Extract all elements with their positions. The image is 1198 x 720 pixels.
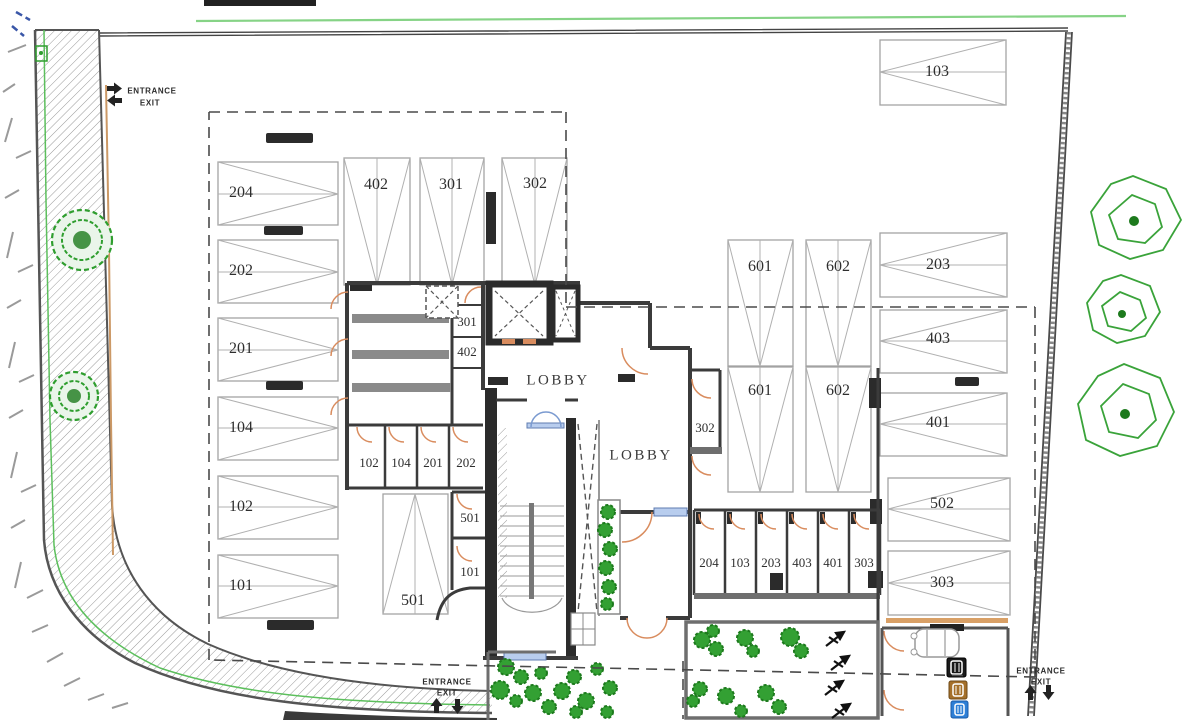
organic-waste-bin-icon [949,681,967,699]
core-planting-strip [598,500,620,614]
parking-stall [218,476,338,539]
door-arc [389,427,404,442]
parking-stall [218,162,338,225]
parking-stall [502,158,567,285]
parking-floor-plan: 204 202 201 104 102 101 402 301 302 103 … [0,0,1198,720]
plan-drawing [0,0,1198,720]
door-arc [421,427,436,442]
ramp [578,420,599,616]
elevator-door [502,339,515,344]
survey-corner-marks [12,12,30,36]
parking-stall [880,310,1007,373]
planter-bottom-center [488,652,617,720]
parking-stall [806,240,871,366]
parking-stall [218,397,338,460]
door-arc [692,456,711,475]
door-arc [457,494,472,509]
stair-core-wall [485,388,497,660]
entrance-arrows-top-left [107,83,122,107]
elevator-door [523,339,536,344]
stair-railing [498,428,507,598]
door-arc [854,514,869,529]
column [486,192,496,244]
parking-stall [218,240,338,303]
parking-stall [806,367,871,492]
green-boundary-line-top [196,16,1126,21]
parking-stall [880,233,1007,297]
entrance-double-door [627,618,667,638]
top-site-boundary [100,0,1126,36]
planter-bottom-right [686,622,878,718]
parking-stall [888,551,1010,615]
gate-bar [204,0,316,6]
arrow-right-icon [107,83,122,95]
parking-stall [218,555,338,618]
parking-stall [383,494,448,614]
general-waste-bin-icon [947,658,966,677]
parking-stall [218,318,338,381]
parking-stall [728,240,793,366]
stairs [498,428,564,612]
parking-stall [880,40,1006,105]
door-arc [884,631,904,651]
door-arc [453,427,468,442]
parking-stall [344,158,410,285]
curb-line [886,618,1008,623]
entrance-arrows-bottom-right [1025,685,1055,700]
door-arc [622,512,652,542]
door-arc [699,514,714,529]
arrow-left-icon [107,95,122,107]
door-arc [792,514,807,529]
waste-room [882,618,1008,718]
right-trees [1078,176,1181,456]
parking-stall [888,478,1010,541]
recycling-bin-icon [951,701,968,718]
door-arc [761,514,776,529]
window [527,423,564,428]
arrow-down-icon [1043,685,1055,700]
door-jambs [696,512,856,524]
parking-stall [728,367,793,492]
door-arc [730,514,745,529]
parking-stall [420,158,484,285]
parking-stall [880,393,1007,456]
column [770,573,783,590]
door-arc [357,427,372,442]
door-arc [622,348,648,374]
door-arc [823,514,838,529]
door-arc [884,690,904,710]
door-arc [465,287,481,303]
cart [915,629,959,657]
door-arc [457,546,472,561]
door-arc [692,379,711,398]
equipment-grid [571,613,595,645]
window [654,508,687,516]
elevator [426,284,578,344]
